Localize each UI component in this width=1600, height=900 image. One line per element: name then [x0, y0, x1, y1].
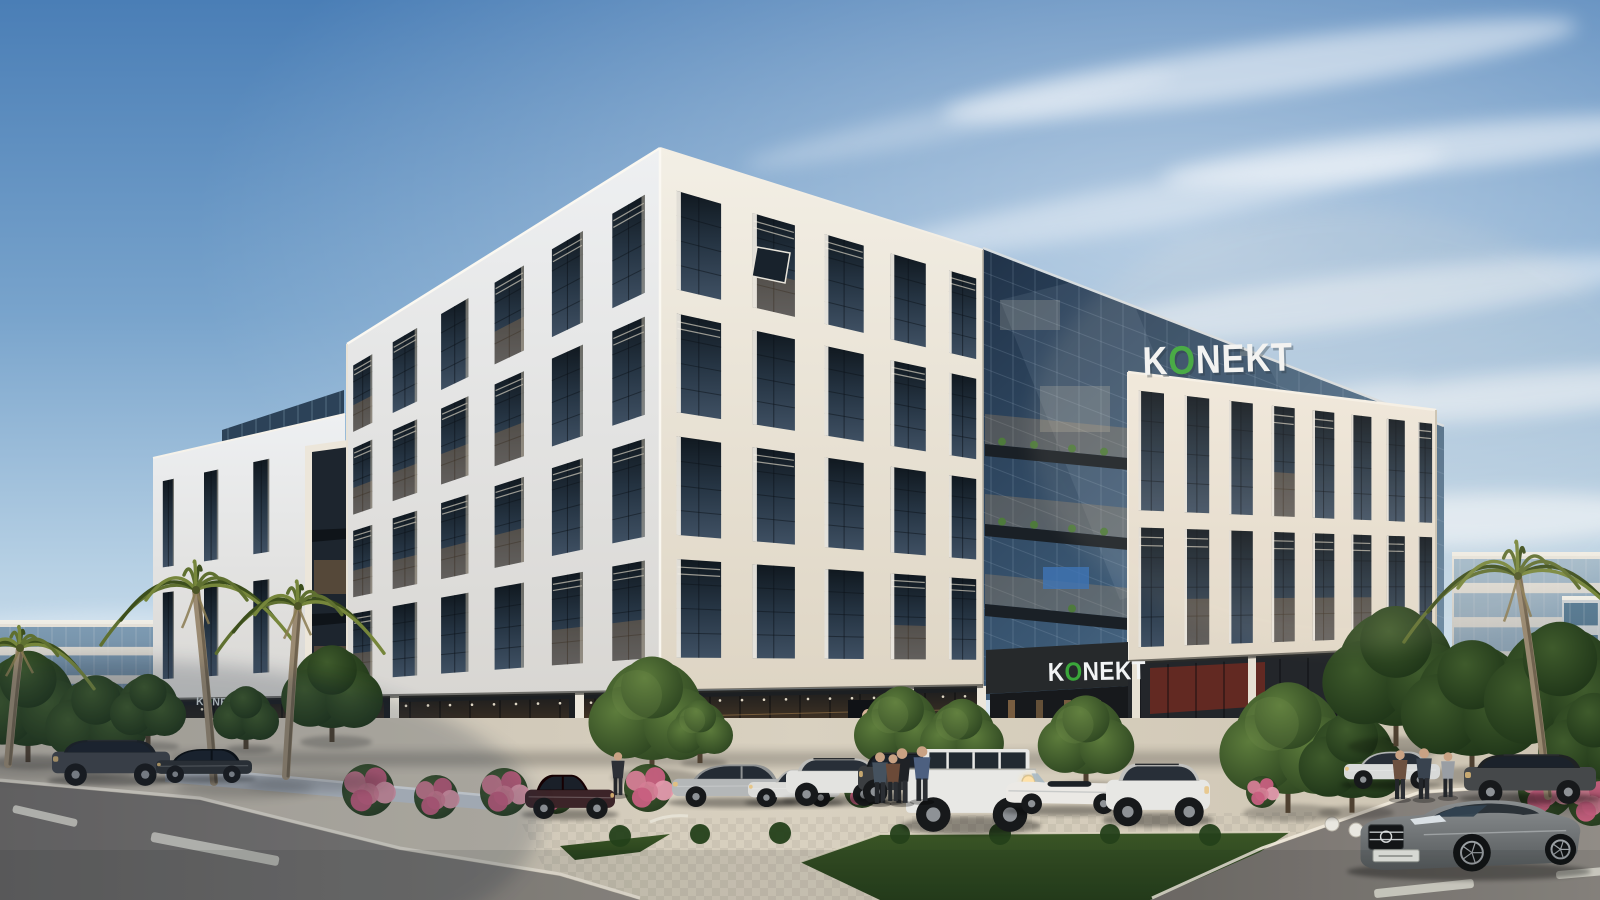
- bollard: [1325, 817, 1339, 831]
- rendering-stage: KONEKTKONEKT KONEKT KONEKT: [0, 0, 1600, 900]
- konekt-building-rendering: KONEKTKONEKT KONEKT KONEKT: [0, 0, 1600, 900]
- hedge: [1100, 824, 1120, 844]
- hedge: [1199, 824, 1221, 846]
- hedge: [769, 822, 791, 844]
- entrance-sign-text: KONEKT: [1048, 657, 1147, 688]
- hedge: [609, 825, 631, 847]
- hedge: [690, 824, 710, 844]
